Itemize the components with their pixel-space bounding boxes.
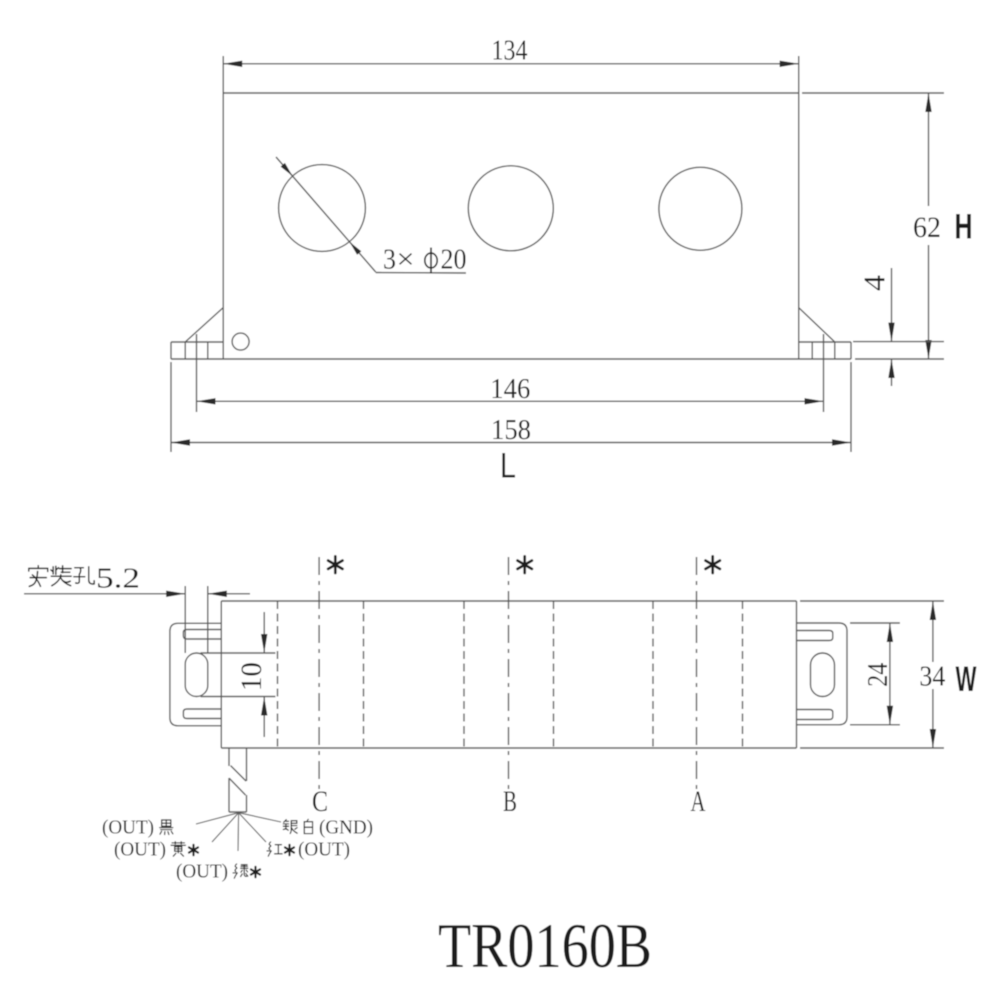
svg-text:A: A <box>691 785 706 818</box>
svg-text:62: 62 <box>913 211 941 244</box>
svg-text:W: W <box>956 660 977 699</box>
svg-text:B: B <box>503 785 517 818</box>
svg-text:L: L <box>500 447 516 486</box>
svg-text:134: 134 <box>492 36 528 67</box>
svg-text:3: 3 <box>383 245 396 276</box>
svg-text:5.2: 5.2 <box>96 564 140 595</box>
svg-text:(OUT): (OUT) <box>114 839 166 861</box>
svg-text:TR0160B: TR0160B <box>438 911 652 981</box>
svg-text:10: 10 <box>235 662 268 691</box>
svg-text:×: × <box>397 245 415 276</box>
svg-text:146: 146 <box>490 374 530 405</box>
svg-text:4: 4 <box>857 274 892 291</box>
svg-text:34: 34 <box>919 661 945 693</box>
svg-text:(OUT): (OUT) <box>102 817 154 839</box>
svg-text:C: C <box>312 785 328 818</box>
svg-text:24: 24 <box>863 663 894 687</box>
svg-text:H: H <box>955 208 973 247</box>
svg-text:(OUT): (OUT) <box>176 861 228 883</box>
svg-text:(GND): (GND) <box>319 817 373 839</box>
svg-text:(OUT): (OUT) <box>298 839 350 861</box>
svg-text:20: 20 <box>441 245 467 276</box>
svg-text:158: 158 <box>491 415 531 446</box>
